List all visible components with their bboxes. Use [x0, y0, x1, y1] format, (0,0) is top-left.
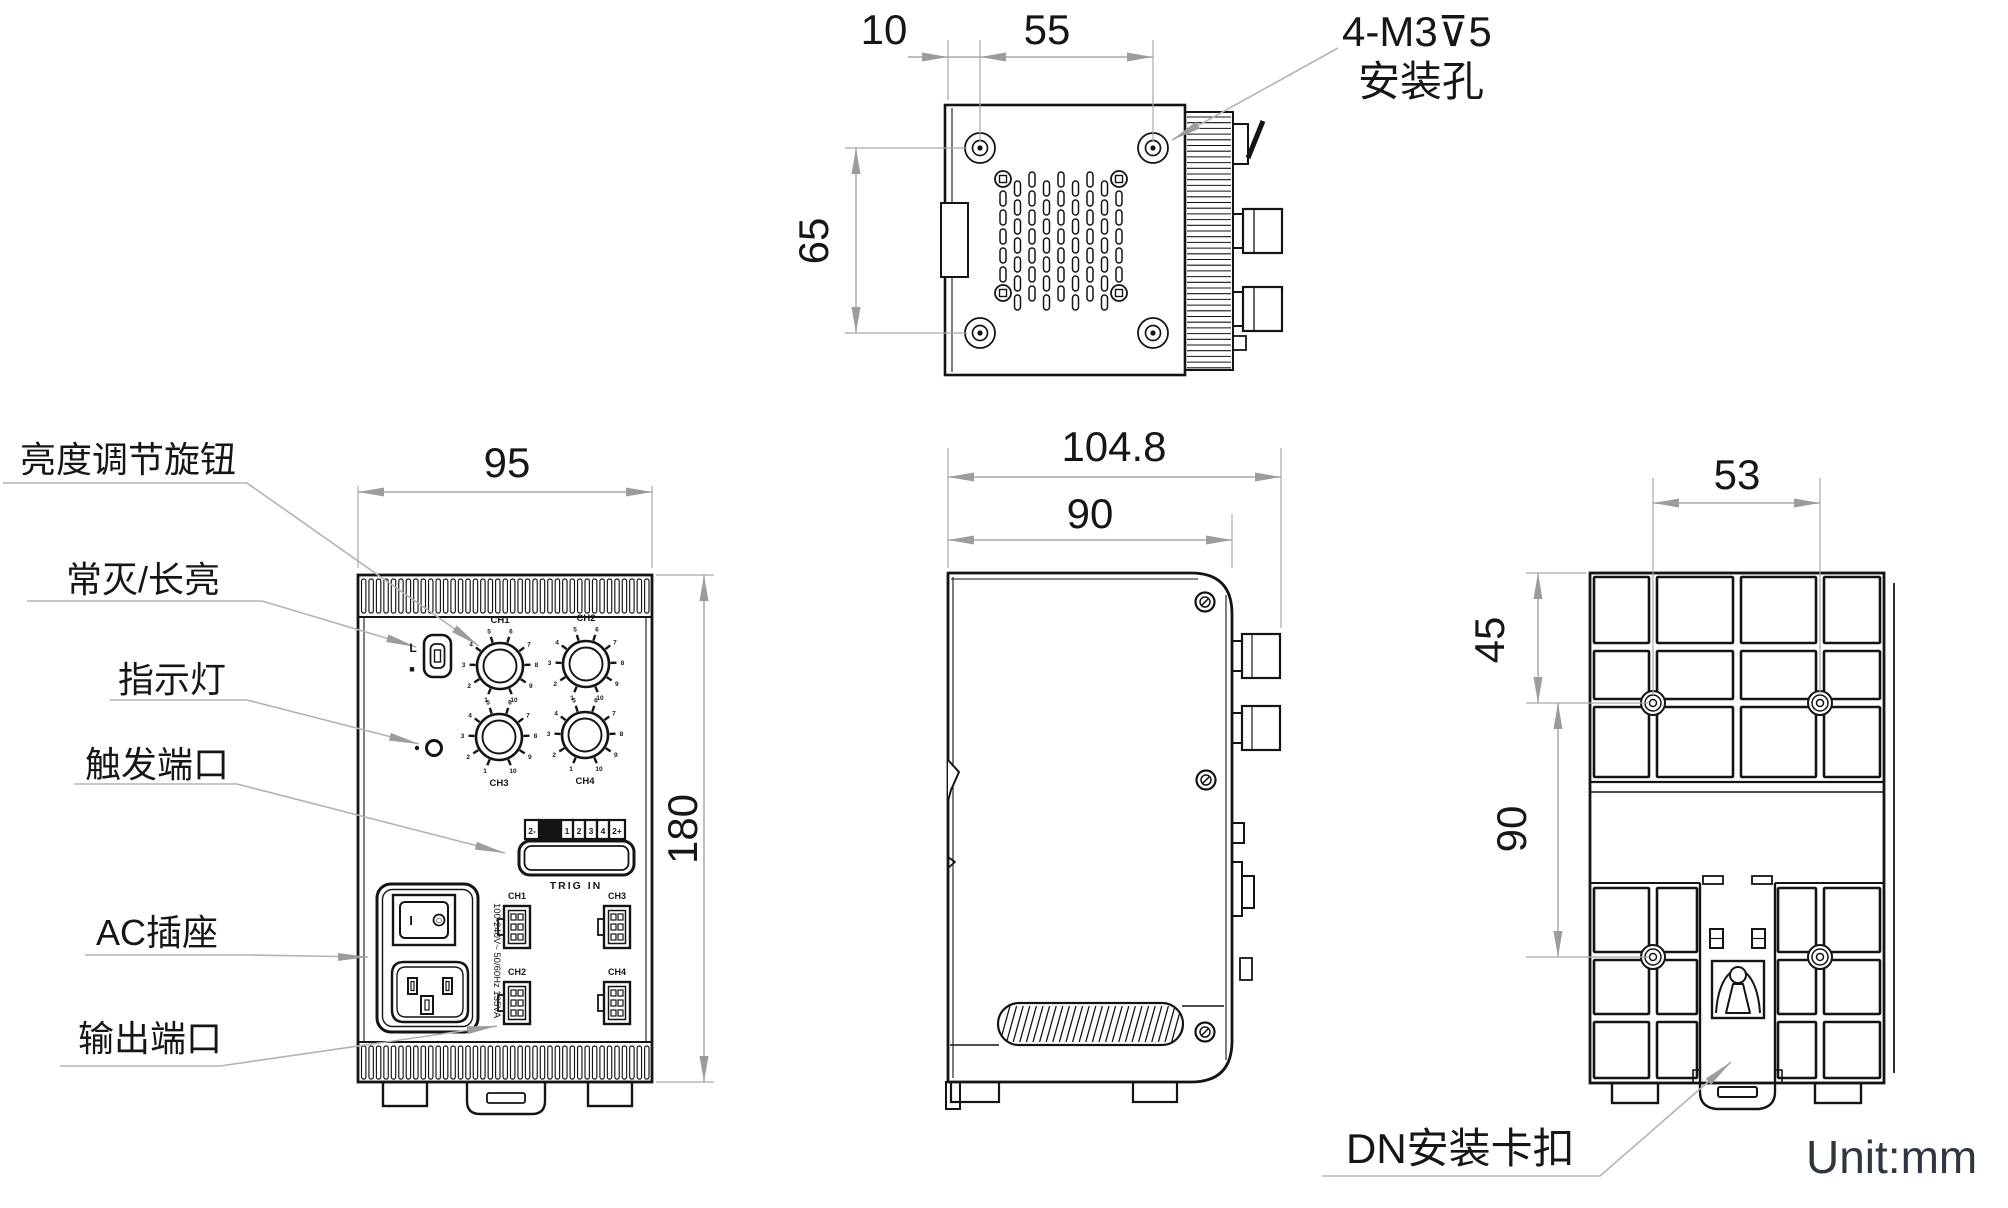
knob-inner — [569, 719, 602, 752]
back-grid-cell — [1657, 1022, 1697, 1078]
vent-slot — [1015, 276, 1021, 291]
knob-tick — [475, 718, 480, 722]
dim-arrow — [1534, 573, 1543, 599]
callout-indicator-light: 指示灯 — [118, 659, 226, 700]
back-grid-cell — [1657, 888, 1697, 952]
front-top-fin — [533, 579, 537, 613]
power-switch-on-mark: I — [409, 913, 413, 928]
connector-pin — [611, 934, 616, 940]
back-grid-cell — [1594, 1022, 1649, 1078]
vent-slot — [1015, 219, 1021, 234]
front-top-fin — [615, 579, 619, 613]
connector-pin — [611, 914, 616, 920]
vent-slot — [1116, 229, 1122, 244]
back-grid-cell — [1594, 707, 1649, 777]
front-bottom-fin — [645, 1046, 649, 1079]
front-bottom-fin — [443, 1046, 447, 1079]
front-top-fin — [429, 579, 433, 613]
leader-arrow — [467, 1022, 498, 1034]
vent-corner-marker — [1111, 171, 1127, 187]
vent-slot — [1044, 295, 1050, 310]
knob-tick-number: 2 — [466, 754, 470, 761]
dim-top-hole-spacing-v: 65 — [790, 218, 837, 265]
din-channel-tab — [1703, 876, 1723, 884]
vent-slot — [1102, 238, 1108, 253]
front-bottom-fin — [615, 1046, 619, 1079]
dim-arrow — [980, 53, 1006, 62]
vent-slot — [1029, 267, 1035, 282]
vent-slot — [1029, 229, 1035, 244]
connector-pin — [511, 990, 516, 996]
knob-tick-number: 1 — [569, 766, 573, 773]
back-grid-cell — [1594, 960, 1649, 1014]
knob-tick-number: 4 — [554, 710, 558, 717]
dim-side-depth-body: 90 — [1067, 490, 1114, 537]
knob-tick-number: 4 — [555, 639, 559, 646]
front-top-fin — [414, 579, 418, 613]
front-bottom-fin — [496, 1046, 500, 1079]
connector-pin — [611, 924, 616, 930]
knob-tick — [605, 645, 610, 649]
knob-tick-number: 5 — [487, 629, 491, 636]
terminal-cell-label: 2+ — [612, 826, 622, 836]
back-grid-cell — [1824, 577, 1880, 643]
front-foot — [383, 1082, 427, 1106]
knob-tick — [594, 758, 596, 764]
dim-arrow — [1534, 677, 1543, 703]
vent-slot — [1015, 181, 1021, 196]
front-top-fin — [525, 579, 529, 613]
front-bottom-fin — [436, 1046, 440, 1079]
front-bottom-fin — [511, 1046, 515, 1079]
connector-pin — [518, 990, 523, 996]
terminal-cell-label: 4 — [601, 826, 606, 836]
knob-tick — [473, 750, 478, 753]
back-grid-cell — [1594, 651, 1649, 699]
screw-slot — [1202, 1029, 1208, 1035]
vent-slot — [1029, 191, 1035, 206]
vent-slot — [1102, 276, 1108, 291]
vent-slot — [1102, 295, 1108, 310]
vent-slot — [1029, 286, 1035, 301]
connector-pin — [618, 1000, 623, 1006]
vent-slot — [1000, 229, 1006, 244]
dim-arrow — [1794, 499, 1820, 508]
front-top-fin — [637, 579, 641, 613]
front-top-fin — [399, 579, 403, 613]
vent-slot — [1044, 238, 1050, 253]
small-tab — [1233, 336, 1246, 350]
vent-slot — [1087, 210, 1093, 225]
din-clip-bottom-slot — [1718, 1087, 1757, 1097]
vent-slot — [1000, 191, 1006, 206]
knob-tick — [562, 645, 567, 649]
switch-profile — [1232, 823, 1244, 843]
knob-tick — [506, 708, 508, 714]
unit-note: Unit:mm — [1806, 1131, 1977, 1183]
back-grid-cell — [1594, 577, 1649, 643]
indicator-leader — [110, 700, 419, 744]
knob-tick-number: 10 — [509, 768, 517, 775]
connector-pin — [518, 914, 523, 920]
leader-arrow — [475, 842, 506, 857]
knob-tick — [521, 679, 526, 682]
side-switch-profile — [1233, 124, 1248, 164]
dim-top-edge-to-hole: 10 — [861, 6, 908, 53]
output-connector-label: CH4 — [608, 967, 626, 977]
knob-tick-number: 8 — [534, 733, 538, 740]
front-bottom-fin — [622, 1046, 626, 1079]
front-bottom-fin — [540, 1046, 544, 1079]
front-top-fin — [466, 579, 470, 613]
knob-inner — [570, 648, 603, 681]
vent-slot — [1044, 276, 1050, 291]
knob-tick-number: 9 — [614, 752, 618, 759]
dim-arrow — [1206, 536, 1232, 545]
front-top-fin — [548, 579, 552, 613]
knob-tick-number: 9 — [528, 754, 532, 761]
connector-pin — [518, 924, 523, 930]
front-top-fin — [376, 579, 380, 613]
mounting-hole-center — [1150, 145, 1155, 150]
terminal-cell-label: 1 — [565, 826, 570, 836]
vent-slot — [1015, 238, 1021, 253]
connector-pin — [518, 1010, 523, 1016]
vent-slot — [1073, 257, 1079, 272]
indicator-dot — [415, 746, 419, 750]
front-bottom-fin — [533, 1046, 537, 1079]
mode-switch — [424, 635, 451, 677]
connector-stub-head — [1243, 287, 1282, 331]
knob-tick — [595, 687, 597, 693]
knob-tick — [520, 750, 525, 753]
vent-slot — [1015, 257, 1021, 272]
dim-back-top-to-hole: 45 — [1466, 617, 1513, 664]
front-top-fin — [496, 579, 500, 613]
vent-slot — [1029, 172, 1035, 187]
technical-drawing-page: 12345678910CH112345678910CH212345678910C… — [0, 0, 2008, 1208]
knob-tick-number: 6 — [508, 700, 512, 707]
output-connector-label: CH2 — [508, 967, 526, 977]
dim-front-height: 180 — [659, 794, 706, 864]
connector-stub-head — [1242, 706, 1280, 750]
connector-pin — [611, 1000, 616, 1006]
knob-channel-label: CH3 — [489, 778, 508, 789]
knob-tick-number: 6 — [594, 698, 598, 705]
vent-slot — [1029, 248, 1035, 263]
front-bottom-fin — [458, 1046, 462, 1079]
front-top-fin — [622, 579, 626, 613]
knob-tick-number: 7 — [526, 712, 530, 719]
knob-tick — [560, 677, 565, 680]
vent-slot — [1087, 172, 1093, 187]
output-connector-label: CH3 — [608, 891, 626, 901]
vent-slot — [1058, 210, 1064, 225]
mounting-hole-center — [977, 145, 982, 150]
back-view-body — [1590, 573, 1884, 1083]
dim-arrow — [948, 536, 974, 545]
knob-tick — [606, 748, 611, 751]
side-din-tab — [946, 1082, 960, 1109]
vent-slot — [1087, 267, 1093, 282]
din-clip-spring — [1745, 972, 1760, 1013]
front-bottom-fin — [488, 1046, 492, 1079]
dim-arrow — [358, 488, 384, 497]
top-view-left-tab — [941, 203, 968, 277]
front-top-fin — [600, 579, 604, 613]
output-connector-label: CH1 — [508, 891, 526, 901]
connector-pin — [611, 1010, 616, 1016]
knob-tick-number: 10 — [595, 766, 603, 773]
vent-corner-marker-hole — [1116, 176, 1123, 183]
knob-tick — [508, 760, 510, 766]
front-bottom-fin — [429, 1046, 433, 1079]
dim-arrow — [700, 1056, 709, 1082]
din-channel-tab — [1752, 876, 1772, 884]
vent-slot — [1058, 229, 1064, 244]
front-bottom-fin — [399, 1046, 403, 1079]
front-bottom-fin — [630, 1046, 634, 1079]
back-grid-cell — [1824, 651, 1880, 699]
front-top-fin — [578, 579, 582, 613]
knob-inner — [484, 650, 517, 683]
back-grid-cell — [1778, 960, 1816, 1014]
side-foot — [951, 1082, 999, 1102]
front-top-fin — [458, 579, 462, 613]
vent-slot — [1015, 295, 1021, 310]
knob-tick-number: 5 — [572, 698, 576, 705]
vent-corner-marker — [1111, 285, 1127, 301]
front-top-fin — [436, 579, 440, 613]
connector-stub-base — [1232, 713, 1242, 743]
connector-stub-base — [1233, 292, 1243, 326]
ac-socket-leader — [85, 955, 368, 957]
mode-switch-actuator — [435, 650, 441, 662]
vent-corner-marker — [995, 171, 1011, 187]
front-bottom-fin — [376, 1046, 380, 1079]
vent-slot — [1044, 200, 1050, 215]
vent-slot — [1087, 286, 1093, 301]
front-top-fin — [451, 579, 455, 613]
vent-corner-marker-hole — [1000, 176, 1007, 183]
socket-profile-base — [1232, 862, 1242, 916]
knob-tick — [607, 677, 612, 680]
knob-tick — [574, 687, 576, 693]
leader-arrow — [452, 626, 481, 650]
connector-pin — [518, 934, 523, 940]
mode-switch-label-bottom: ■ — [409, 664, 414, 674]
vent-corner-marker-hole — [1000, 290, 1007, 297]
front-bottom-fin — [391, 1046, 395, 1079]
front-top-fin — [473, 579, 477, 613]
back-grid-cell — [1741, 651, 1816, 699]
mode-switch-label-top: L — [409, 641, 416, 655]
callout-din-clip: DN安装卡扣 — [1346, 1125, 1575, 1172]
front-top-fin — [585, 579, 589, 613]
knob-tick — [592, 706, 594, 712]
dim-side-depth-overall: 104.8 — [1061, 423, 1166, 470]
dim-arrow — [1554, 931, 1563, 957]
back-grid-cell — [1824, 1022, 1880, 1078]
front-top-fin — [563, 579, 567, 613]
callout-brightness-knob: 亮度调节旋钮 — [20, 439, 236, 480]
knob-channel-label: CH2 — [576, 613, 595, 624]
knob-inner — [483, 721, 516, 754]
vent-slot — [1073, 238, 1079, 253]
dim-arrow — [1554, 703, 1563, 729]
front-bottom-fin — [384, 1046, 388, 1079]
mounting-hole-center — [977, 330, 982, 335]
knob-tick-number: 2 — [553, 681, 557, 688]
back-grid-cell — [1741, 707, 1816, 777]
front-bottom-fin — [525, 1046, 529, 1079]
connector-pin — [511, 1000, 516, 1006]
terminal-cell-label: 2- — [528, 826, 536, 836]
knob-tick-number: 3 — [547, 731, 551, 738]
front-bottom-fin — [563, 1046, 567, 1079]
front-top-fin — [555, 579, 559, 613]
dim-back-hole-spacing-h: 53 — [1714, 451, 1761, 498]
front-bottom-fin — [481, 1046, 485, 1079]
knob-tick-number: 7 — [612, 710, 616, 717]
dim-arrow — [1653, 499, 1679, 508]
knob-channel-label: CH1 — [490, 615, 510, 626]
knob-tick-number: 6 — [509, 629, 513, 636]
knob-tick-number: 3 — [548, 660, 552, 667]
back-grid-cell — [1824, 960, 1880, 1014]
knob-tick-number: 3 — [462, 662, 466, 669]
vent-slot — [1073, 276, 1079, 291]
knob-tick — [488, 689, 490, 695]
vent-slot — [1044, 181, 1050, 196]
vent-slot — [1044, 219, 1050, 234]
dim-arrow — [852, 307, 861, 333]
vent-slot — [1000, 210, 1006, 225]
connector-pin — [511, 914, 516, 920]
vent-corner-marker — [995, 285, 1011, 301]
connector-stub-base — [1233, 214, 1243, 248]
front-top-fin — [503, 579, 507, 613]
vent-slot — [1102, 200, 1108, 215]
dim-top-hole-spacing-h: 55 — [1024, 6, 1071, 53]
vent-slot — [1029, 210, 1035, 225]
knob-tick-number: 8 — [620, 731, 624, 738]
screw-slot — [1202, 599, 1208, 605]
terminal-cell-label: COM — [542, 829, 559, 836]
connector-pin — [511, 934, 516, 940]
front-top-fin — [488, 579, 492, 613]
front-din-bump — [467, 1082, 545, 1114]
knob-tick — [509, 689, 511, 695]
iec-pin-slot — [446, 982, 449, 991]
trigger-port-leader — [74, 784, 505, 853]
knob-tick — [519, 647, 524, 651]
drawing-geometry: 12345678910CH112345678910CH212345678910C… — [358, 105, 1894, 1114]
dimension-drawing: 12345678910CH112345678910CH212345678910C… — [0, 0, 2008, 1208]
dim-arrow — [700, 575, 709, 601]
knob-tick — [491, 637, 493, 643]
vent-slot — [1000, 248, 1006, 263]
callout-mode-switch: 常灭/长亮 — [66, 559, 220, 600]
knob-tick — [577, 635, 579, 641]
terminal-cell-label: 3 — [589, 826, 594, 836]
front-top-fin — [518, 579, 522, 613]
front-foot — [588, 1082, 632, 1106]
connector-stub-head — [1242, 634, 1280, 678]
knob-tick — [604, 716, 609, 720]
vent-corner-marker-hole — [1116, 290, 1123, 297]
power-switch-off-mark: ○ — [435, 913, 442, 927]
connector-pin — [618, 1010, 623, 1016]
iec-pin-slot — [425, 1000, 429, 1010]
connector-stub-base — [1232, 641, 1242, 671]
front-top-fin — [630, 579, 634, 613]
front-bottom-fin — [421, 1046, 425, 1079]
vent-slot — [1087, 229, 1093, 244]
mounting-hole-callout-line1: 4-M3⊽5 — [1342, 8, 1492, 55]
dim-arrow — [922, 53, 948, 62]
knob-tick-number: 8 — [535, 662, 539, 669]
power-rating-text: 100-240V~ 50/60Hz 135VA — [491, 903, 502, 1019]
front-bottom-fin — [570, 1046, 574, 1079]
dim-front-width: 95 — [484, 439, 531, 486]
knob-tick — [559, 748, 564, 751]
knob-tick-number: 2 — [552, 752, 556, 759]
front-top-fin — [540, 579, 544, 613]
knob-tick-number: 5 — [573, 627, 577, 634]
indicator-led — [427, 741, 442, 756]
vent-slot — [1087, 248, 1093, 263]
front-top-fin — [443, 579, 447, 613]
iec-pin-earth — [421, 996, 433, 1014]
front-top-fin — [369, 579, 373, 613]
vent-slot — [1044, 257, 1050, 272]
vent-slot — [1058, 267, 1064, 282]
connector-pin — [618, 914, 623, 920]
front-top-fin — [607, 579, 611, 613]
knob-tick — [573, 758, 575, 764]
knob-tick — [476, 647, 481, 651]
iec-pin-slot — [411, 982, 414, 991]
leader-arrow — [389, 733, 420, 748]
knob-tick-number: 3 — [461, 733, 465, 740]
front-bottom-fin — [607, 1046, 611, 1079]
slat-group — [1000, 1006, 1195, 1042]
front-bottom-fin — [414, 1046, 418, 1079]
side-foot — [1133, 1082, 1177, 1102]
connector-stub-head — [1243, 209, 1282, 253]
knob-tick — [487, 760, 489, 766]
knob-tick — [518, 718, 523, 722]
vent-slot — [1058, 191, 1064, 206]
terminal-cell-label: 2 — [577, 826, 582, 836]
vent-slot — [1073, 181, 1079, 196]
connector-pin — [518, 1000, 523, 1006]
vent-slot — [1116, 267, 1122, 282]
front-bottom-fin — [406, 1046, 410, 1079]
front-top-fin — [511, 579, 515, 613]
front-bottom-fin — [362, 1046, 366, 1079]
vent-slot — [1015, 200, 1021, 215]
knob-tick-number: 5 — [486, 700, 490, 707]
connector-pin — [618, 990, 623, 996]
dim-arrow — [626, 488, 652, 497]
vent-slot — [1000, 267, 1006, 282]
dim-arrow — [1255, 473, 1281, 482]
switch-lever — [1248, 121, 1263, 158]
callout-ac-socket: AC插座 — [96, 912, 218, 953]
back-grid-cell — [1741, 577, 1816, 643]
